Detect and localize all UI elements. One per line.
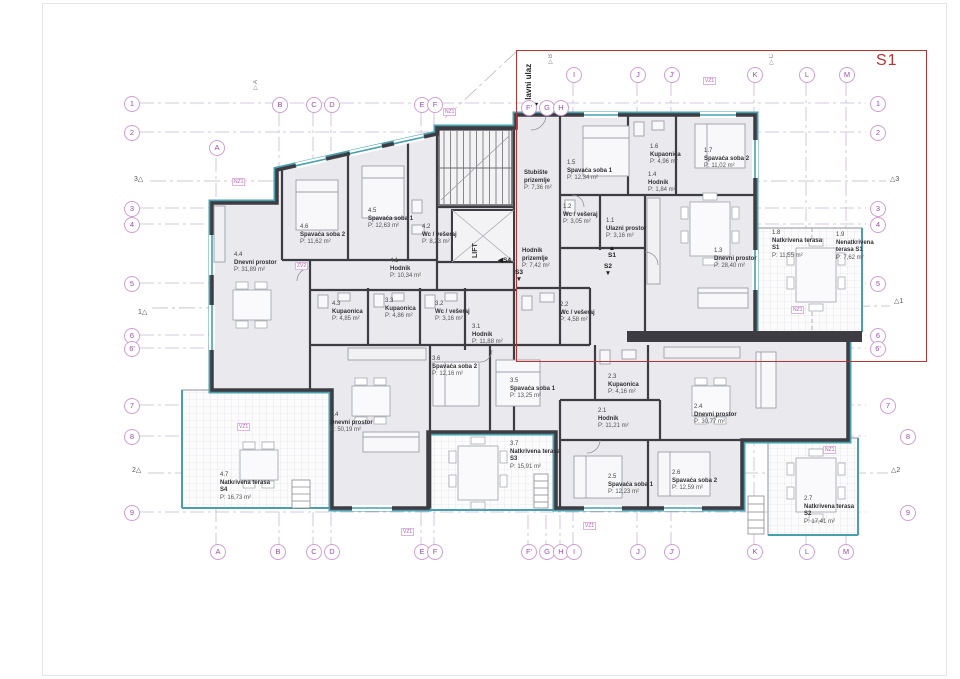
grid-top-f: F	[427, 97, 443, 113]
marker-s4: ◀S4	[498, 258, 511, 265]
room-label-3-4: 3.4Dnevni prostorP: 50,19 m²	[330, 412, 384, 435]
room-label-2-4: 2.4Dnevni prostorP: 30,77 m²	[694, 404, 748, 427]
room-label-3-2: 3.2Wc / vešerajP: 3,16 m²	[435, 301, 489, 324]
ref-tag: NZ1	[232, 178, 245, 186]
grid-bottom-a: A	[210, 544, 226, 560]
section-arrow-b: ▽B	[547, 54, 554, 65]
room-label-2-6: 2.6Spavaća soba 2P: 12,59 m²	[672, 470, 726, 493]
section-arrow-c: ▽C	[768, 54, 775, 65]
unit-s1-label: S1	[876, 52, 898, 70]
grid-top-b: B	[272, 97, 288, 113]
grid-left-6p: 6'	[124, 341, 140, 357]
room-label-4-4: 4.4Dnevni prostorP: 31,89 m²	[234, 252, 288, 275]
ref-tag: VZ1	[583, 522, 596, 530]
ref-tag: VZ1	[401, 528, 414, 536]
room-label-1-2: 1.2Wc / vešerajP: 3,05 m²	[563, 204, 617, 227]
marker-s1: ▲S1	[608, 246, 616, 260]
grid-a: A	[209, 140, 225, 156]
marker-right-3: △3	[890, 175, 899, 183]
room-label-4-6: 4.6Spavaća soba 2P: 11,62 m²	[300, 224, 354, 247]
arrow-down-icon: ▼	[605, 270, 611, 277]
room-label-2-2: 2.2Wc / vešerajP: 4,58 m²	[560, 302, 614, 325]
grid-left-4: 4	[124, 217, 140, 233]
section-arrow-a: ▽A	[252, 80, 259, 91]
grid-bottom-i: I	[566, 544, 582, 560]
grid-right-2: 2	[870, 125, 886, 141]
grid-right-5: 5	[870, 276, 886, 292]
room-label-4-7: 4.7Natkrivena terasa S4P: 16,73 m²	[220, 472, 274, 502]
ref-tag: VZ1	[703, 77, 716, 85]
room-label-3-3: 3.3KupaonicaP: 4,86 m²	[385, 298, 439, 321]
grid-left-1: 1	[124, 96, 140, 112]
grid-bottom-b: B	[270, 544, 286, 560]
marker-right-1: △1	[894, 297, 903, 305]
grid-bottom-l: L	[799, 544, 815, 560]
grid-left-7: 7	[124, 398, 140, 414]
grid-left-5: 5	[124, 276, 140, 292]
marker-right-2: △2	[891, 466, 900, 474]
room-label-2-1: 2.1HodnikP: 11,21 m²	[598, 408, 652, 431]
grid-top-i: I	[566, 67, 582, 83]
grid-right-3: 3	[870, 201, 886, 217]
grid-bottom-jp: J'	[664, 544, 680, 560]
room-label-1-7: 1.7Spavaća soba 2P: 11,02 m²	[704, 148, 758, 171]
room-label-1-5: 1.5Spavaća soba 1P: 12,34 m²	[567, 160, 621, 183]
grid-top-c: C	[306, 97, 322, 113]
room-label-1-8: 1.8Natkrivena terasa S1P: 11,55 m²	[772, 230, 826, 260]
room-label-1-3: 1.3Dnevni prostorP: 28,40 m²	[714, 248, 768, 271]
room-label-3-6: 3.6Spavaća soba 2P: 12,16 m²	[432, 356, 486, 379]
ref-tag: NZ1	[443, 108, 456, 116]
grid-bottom-c: C	[306, 544, 322, 560]
grid-bottom-fp: F'	[521, 544, 537, 560]
marker-s2: S2▼	[604, 264, 612, 278]
grid-left-2: 2	[124, 125, 140, 141]
room-label-2-7: 2.7Natkrivena terasa S2P: 17,41 m²	[804, 496, 858, 526]
grid-left-8: 8	[124, 429, 140, 445]
grid-bottom-d: D	[324, 544, 340, 560]
marker-left-1: 1△	[138, 308, 147, 316]
grid-bottom-m: M	[838, 544, 854, 560]
room-label-4-1: 4.1HodnikP: 10,34 m²	[390, 258, 444, 281]
grid-top-jp: J'	[664, 67, 680, 83]
room-label-3-7: 3.7Natkrivena terasa S3P: 15,91 m²	[510, 441, 564, 471]
grid-top-d: D	[324, 97, 340, 113]
room-label-4-5: 4.5Spavaća soba 1P: 12,63 m²	[368, 208, 422, 231]
grid-right-7: 7	[880, 398, 896, 414]
ref-tag: VZ1	[237, 423, 250, 431]
ref-tag: ZV2	[295, 262, 308, 270]
room-label-2-3: 2.3KupaonicaP: 4,16 m²	[608, 374, 662, 397]
grid-top-k: K	[747, 67, 763, 83]
room-label-4-3: 4.3KupaonicaP: 4,85 m²	[332, 301, 386, 324]
room-label-3-1: 3.1HodnikP: 11,88 m²	[472, 324, 526, 347]
lift-label: LIFT	[472, 218, 479, 258]
room-label-1-4: 1.4HodnikP: 1,84 m²	[648, 172, 702, 195]
grid-top-h: H	[553, 100, 569, 116]
grid-top-m: M	[839, 67, 855, 83]
room-label-1-9: 1.9Nenatkrivena terasa S1P: 7,62 m²	[836, 232, 890, 262]
grid-bottom-j: J	[630, 544, 646, 560]
grid-bottom-f: F	[427, 544, 443, 560]
room-label-hodnik-prizemlje: Hodnik prizemljeP: 7,42 m²	[522, 248, 562, 271]
grid-top-j: J	[630, 67, 646, 83]
marker-left-3: 3△	[134, 175, 143, 183]
grid-right-1: 1	[870, 96, 886, 112]
grid-top-l: L	[799, 67, 815, 83]
grid-right-4: 4	[870, 217, 886, 233]
grid-right-6p: 6'	[870, 341, 886, 357]
ref-tag: NZ1	[823, 446, 836, 454]
room-label-2-5: 2.5Spavaća soba 1P: 12,23 m²	[608, 474, 662, 497]
room-label-3-5: 3.5Spavaća soba 1P: 13,25 m²	[510, 378, 564, 401]
grid-right-9: 9	[900, 505, 916, 521]
main-entrance-label: Glavni ulaz	[524, 56, 533, 106]
grid-bottom-k: K	[747, 544, 763, 560]
room-label-4-2: 4.2Wc / vešerajP: 8,23 m²	[422, 224, 476, 247]
marker-s3: S3▼	[515, 270, 523, 284]
marker-left-2: 2△	[132, 466, 141, 474]
staircase	[439, 130, 512, 205]
room-label-stubiste: Stubište prizemljeP: 7,36 m²	[524, 170, 564, 193]
room-label-1-6: 1.6KupaonicaP: 4,96 m²	[650, 144, 704, 167]
arrow-down-icon: ▼	[516, 276, 522, 283]
grid-left-3: 3	[124, 201, 140, 217]
grid-left-9: 9	[124, 505, 140, 521]
floorplan-sheet: { "title": "S1", "entrance_label": "Glav…	[0, 0, 960, 679]
grid-top-fp: F'	[521, 100, 537, 116]
grid-right-8: 8	[900, 429, 916, 445]
ref-tag: NZ1	[791, 306, 804, 314]
